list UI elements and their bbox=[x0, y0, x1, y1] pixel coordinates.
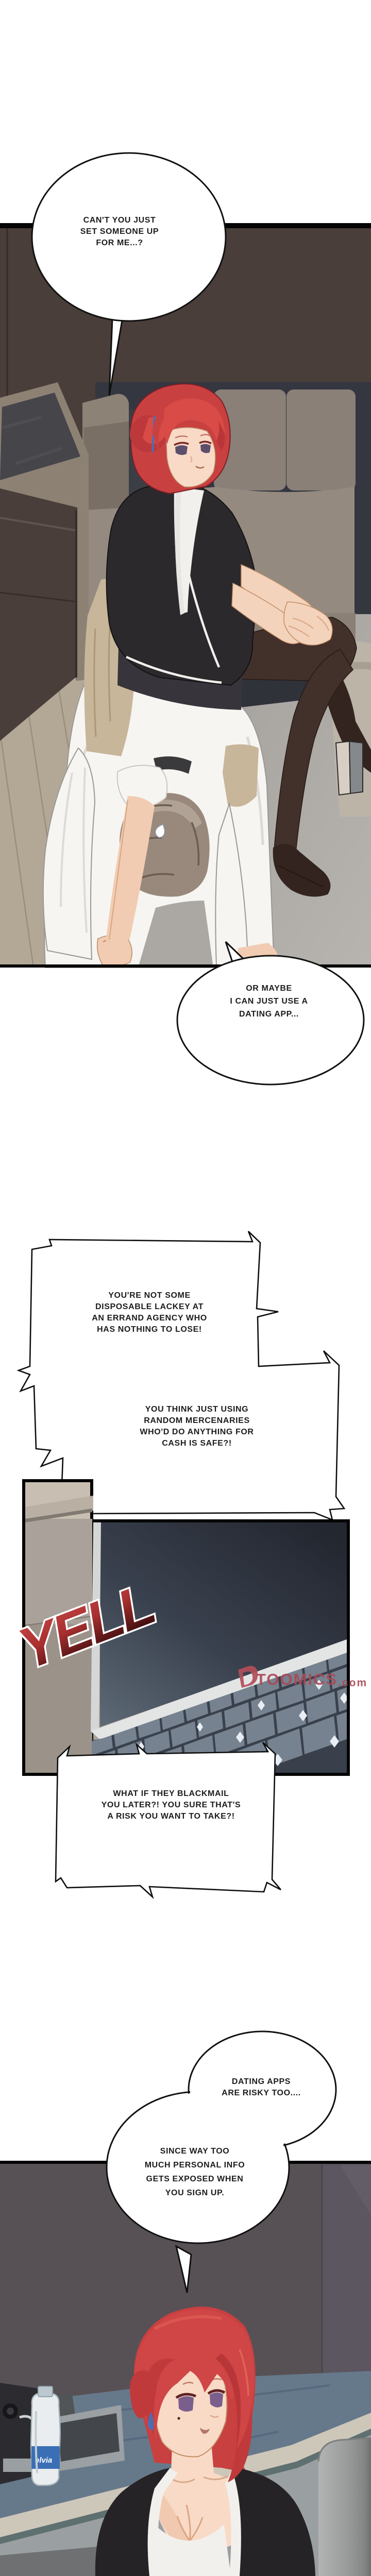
svg-text:YOU LATER?! YOU SURE THAT'S: YOU LATER?! YOU SURE THAT'S bbox=[102, 1801, 241, 1809]
svg-text:ARE RISKY TOO....: ARE RISKY TOO.... bbox=[222, 2089, 301, 2097]
svg-text:YOU'RE NOT SOME: YOU'RE NOT SOME bbox=[108, 1291, 190, 1300]
svg-text:DATING APP...: DATING APP... bbox=[239, 1010, 299, 1019]
svg-text:DATING APPS: DATING APPS bbox=[232, 2077, 291, 2086]
svg-text:FOR ME...?: FOR ME...? bbox=[96, 239, 143, 247]
svg-text:WHAT IF THEY BLACKMAIL: WHAT IF THEY BLACKMAIL bbox=[113, 1789, 229, 1798]
svg-text:SET SOMEONE UP: SET SOMEONE UP bbox=[80, 227, 159, 236]
svg-text:CASH IS SAFE?!: CASH IS SAFE?! bbox=[162, 1439, 232, 1448]
svg-text:WHO'D DO ANYTHING FOR: WHO'D DO ANYTHING FOR bbox=[140, 1428, 254, 1436]
svg-text:OR MAYBE: OR MAYBE bbox=[246, 984, 292, 993]
svg-text:GETS EXPOSED WHEN: GETS EXPOSED WHEN bbox=[146, 2175, 244, 2183]
svg-text:DISPOSABLE LACKEY AT: DISPOSABLE LACKEY AT bbox=[95, 1302, 204, 1311]
svg-text:SINCE WAY TOO: SINCE WAY TOO bbox=[160, 2147, 230, 2156]
svg-text:elvia: elvia bbox=[35, 2456, 52, 2465]
svg-text:RANDOM MERCENARIES: RANDOM MERCENARIES bbox=[144, 1416, 249, 1425]
svg-text:HAS NOTHING TO LOSE!: HAS NOTHING TO LOSE! bbox=[97, 1325, 202, 1334]
svg-text:TOOMICS.com: TOOMICS.com bbox=[256, 1670, 367, 1689]
svg-text:CAN'T YOU JUST: CAN'T YOU JUST bbox=[83, 216, 156, 225]
svg-text:AN ERRAND AGENCY WHO: AN ERRAND AGENCY WHO bbox=[92, 1314, 207, 1323]
svg-text:YOU THINK JUST USING: YOU THINK JUST USING bbox=[145, 1405, 248, 1414]
svg-text:A RISK YOU WANT TO TAKE?!: A RISK YOU WANT TO TAKE?! bbox=[107, 1812, 234, 1821]
svg-text:YOU SIGN UP.: YOU SIGN UP. bbox=[165, 2189, 225, 2197]
svg-text:I CAN JUST USE A: I CAN JUST USE A bbox=[230, 997, 308, 1006]
svg-text:MUCH PERSONAL INFO: MUCH PERSONAL INFO bbox=[145, 2161, 245, 2170]
